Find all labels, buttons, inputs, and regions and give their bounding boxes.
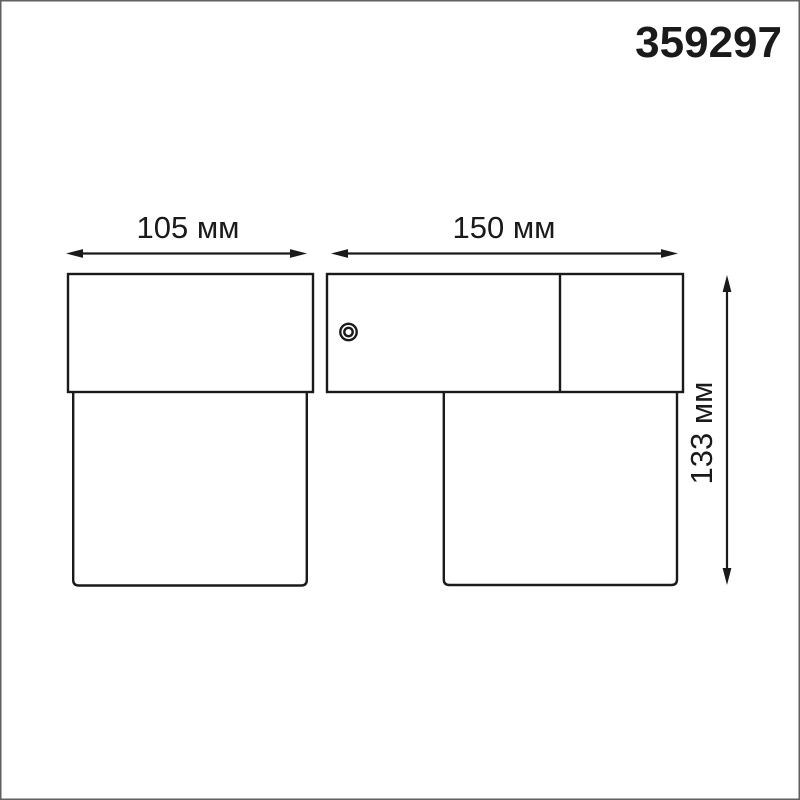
dimension-drawing: 359297 105 мм 150 мм [0,0,800,800]
arrowhead-down-icon [723,568,732,585]
side-view-lamp-body [73,391,307,586]
arrowhead-left-icon [331,249,348,258]
width-right-label: 150 мм [453,210,556,245]
dimension-width-right: 150 мм [331,210,678,258]
front-view [327,274,683,585]
height-label: 133 мм [684,382,719,485]
dimension-height: 133 мм [684,275,731,585]
width-left-label: 105 мм [137,210,240,245]
front-view-mounting-base [327,274,683,392]
arrowhead-up-icon [723,275,732,292]
side-view-mounting-base [68,274,313,392]
article-number: 359297 [635,18,782,67]
front-view-lamp-body [444,391,677,585]
side-view [68,274,313,586]
arrowhead-left-icon [66,249,83,258]
arrowhead-right-icon [661,249,678,258]
product-dimension-drawing-page: 359297 105 мм 150 мм [0,0,800,800]
arrowhead-right-icon [290,249,307,258]
dimension-width-left: 105 мм [66,210,307,258]
